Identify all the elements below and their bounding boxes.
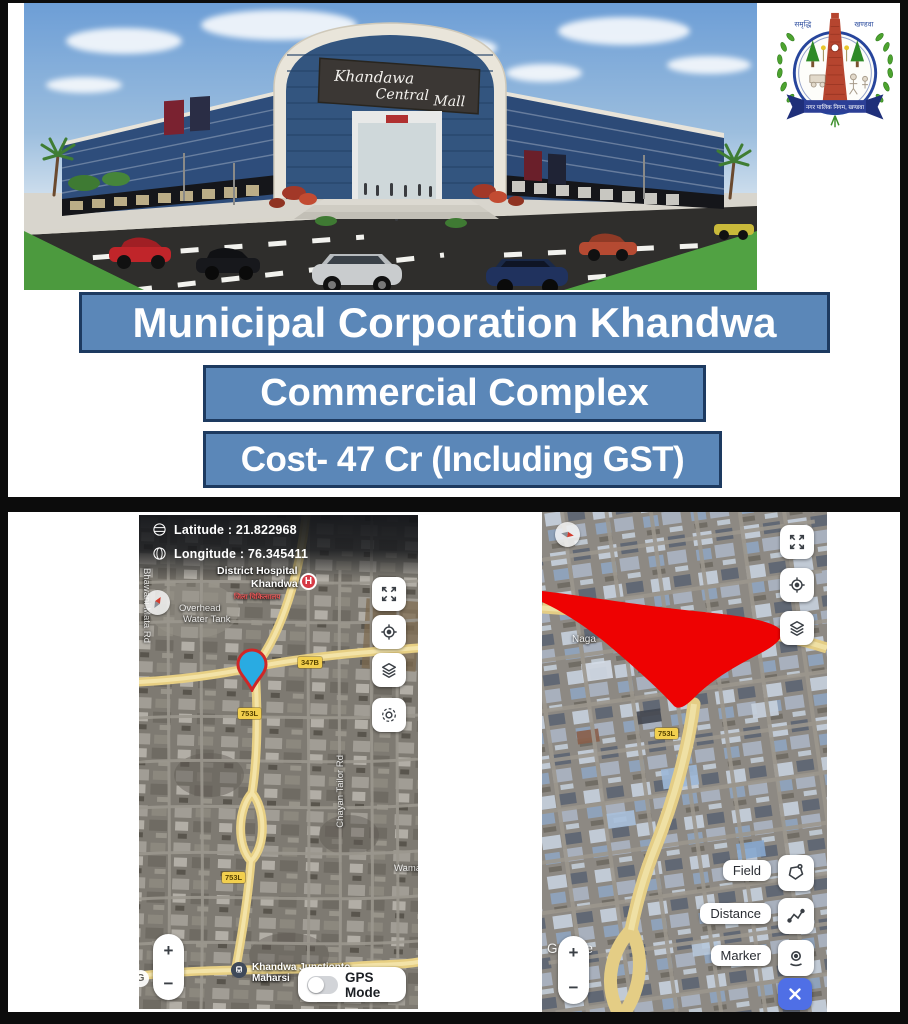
hospital-label-hindi: जिला चिकित्सालय xyxy=(234,593,280,602)
title-text: Municipal Corporation Khandwa xyxy=(132,299,776,347)
gps-mode-toggle[interactable] xyxy=(307,976,338,994)
compass-needle-icon xyxy=(149,594,166,611)
train-station-icon xyxy=(231,962,247,978)
route-badge-753l: 753L xyxy=(655,728,678,739)
toggle-knob xyxy=(308,977,324,993)
field-tool-button[interactable] xyxy=(778,855,814,891)
location-pin[interactable] xyxy=(235,648,269,692)
naga-label: Naga xyxy=(572,634,596,645)
close-icon xyxy=(788,987,802,1001)
compass-button[interactable] xyxy=(145,590,170,615)
top-panel: Khandawa Central Mall xyxy=(8,3,900,497)
fullscreen-button[interactable] xyxy=(780,525,814,559)
mall-render-image: Khandawa Central Mall xyxy=(24,3,757,290)
fullscreen-icon xyxy=(380,585,398,603)
longitude-globe-icon xyxy=(152,546,167,561)
zoom-in-button[interactable]: + xyxy=(569,945,579,960)
measure-icon xyxy=(786,906,806,926)
my-location-icon xyxy=(788,576,806,594)
marker-tool-label[interactable]: Marker xyxy=(711,945,771,966)
zoom-out-button[interactable]: − xyxy=(569,980,579,995)
pin-icon xyxy=(786,948,806,968)
mall-sign-word1: Khandawa xyxy=(333,67,414,88)
mall-sign-word2: Central xyxy=(375,86,429,104)
municipal-logo: समृद्धि खण्डवा xyxy=(766,11,904,135)
road-label-chayan: Chayan Tailor Rd xyxy=(335,755,346,828)
fullscreen-button[interactable] xyxy=(372,577,406,611)
zoom-control[interactable]: + − xyxy=(153,934,184,1000)
close-button[interactable] xyxy=(778,978,812,1010)
zoom-control[interactable]: + − xyxy=(558,936,589,1004)
latitude-globe-icon xyxy=(152,522,167,537)
route-badge-753l-b: 753L xyxy=(222,872,245,883)
cost-banner: Cost- 47 Cr (Including GST) xyxy=(203,431,722,488)
hospital-marker: H xyxy=(300,573,317,590)
satellite-map-left[interactable]: Latitude : 21.822968 Longitude : 76.3454… xyxy=(139,515,418,1009)
route-badge-753l-a: 753L xyxy=(238,708,261,719)
polygon-icon xyxy=(786,863,806,883)
hospital-label-line2: Khandwa xyxy=(251,578,298,590)
layers-button[interactable] xyxy=(372,653,406,687)
google-badge-letter: G xyxy=(139,973,144,984)
water-tank-label-line1: Overhead xyxy=(179,603,221,614)
satellite-map-right[interactable]: Naga 753L xyxy=(542,512,827,1012)
gps-mode-label: GPS Mode xyxy=(345,970,397,1000)
logo-top-left-text: समृद्धि xyxy=(794,20,811,29)
mall-sign-word3: Mall xyxy=(432,93,465,110)
cost-text: Cost- 47 Cr (Including GST) xyxy=(241,440,684,480)
subtitle-text: Commercial Complex xyxy=(260,372,649,415)
fullscreen-icon xyxy=(788,533,806,551)
wama-label: Wama xyxy=(394,863,418,874)
layers-button[interactable] xyxy=(780,611,814,645)
gyro-compass-icon xyxy=(380,706,398,724)
gyro-compass-button[interactable] xyxy=(372,698,406,732)
marker-tool-button[interactable] xyxy=(778,940,814,976)
subtitle-banner: Commercial Complex xyxy=(203,365,706,422)
gps-mode-control[interactable]: GPS Mode xyxy=(298,967,406,1002)
field-tool-label[interactable]: Field xyxy=(723,860,771,881)
route-badge-347b: 347B xyxy=(298,657,322,668)
latitude-value: Latitude : 21.822968 xyxy=(174,523,297,537)
my-location-button[interactable] xyxy=(780,568,814,602)
water-tank-label-line2: Water Tank xyxy=(183,614,231,625)
bottom-panel: Latitude : 21.822968 Longitude : 76.3454… xyxy=(8,512,900,1012)
my-location-button[interactable] xyxy=(372,615,406,649)
zoom-in-button[interactable]: + xyxy=(164,943,174,958)
logo-ribbon-text: नगर पालिक निगम, खण्डवा xyxy=(806,103,865,111)
compass-needle-icon xyxy=(559,526,576,543)
longitude-value: Longitude : 76.345411 xyxy=(174,547,308,561)
logo-top-right-text: खण्डवा xyxy=(854,20,873,29)
distance-tool-label[interactable]: Distance xyxy=(700,903,771,924)
mall-center-tower: Khandawa Central Mall xyxy=(274,23,506,223)
layers-icon xyxy=(380,661,398,679)
distance-tool-button[interactable] xyxy=(778,898,814,934)
page: Khandawa Central Mall xyxy=(0,0,908,1024)
zoom-out-button[interactable]: − xyxy=(164,976,174,991)
hospital-marker-letter: H xyxy=(305,576,312,587)
mall-illustration: Khandawa Central Mall xyxy=(24,3,757,290)
ribbon-sprig xyxy=(831,116,839,128)
compass-button[interactable] xyxy=(555,522,580,547)
layers-icon xyxy=(788,619,806,637)
hospital-label-line1: District Hospital xyxy=(217,565,298,577)
title-banner: Municipal Corporation Khandwa xyxy=(79,292,830,353)
my-location-icon xyxy=(380,623,398,641)
